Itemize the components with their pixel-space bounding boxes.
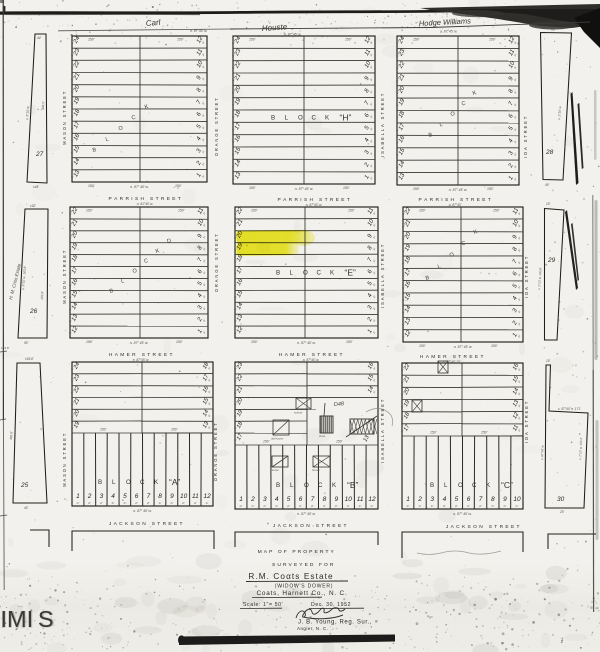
svg-text:10: 10 bbox=[180, 493, 188, 500]
svg-text:15': 15' bbox=[546, 202, 551, 206]
svg-text:(WIDOW'S DOWER): (WIDOW'S DOWER) bbox=[275, 584, 334, 590]
svg-text:150': 150' bbox=[343, 186, 350, 190]
svg-text:6: 6 bbox=[135, 493, 139, 500]
svg-text:C: C bbox=[140, 479, 145, 486]
svg-text:M A S O N S T R E E T: M A S O N S T R E E T bbox=[62, 250, 67, 304]
svg-text:29: 29 bbox=[547, 257, 556, 264]
svg-text:2: 2 bbox=[250, 496, 255, 503]
svg-text:O R A N G E S T R E E T: O R A N G E S T R E E T bbox=[214, 98, 219, 156]
svg-text:150': 150' bbox=[251, 340, 258, 344]
svg-text:150': 150' bbox=[487, 187, 494, 191]
svg-text:2r': 2r' bbox=[311, 504, 314, 508]
svg-text:40': 40' bbox=[24, 506, 29, 510]
svg-text:M A S O N S T R E E T: M A S O N S T R E E T bbox=[62, 433, 67, 487]
svg-text:L: L bbox=[290, 270, 294, 277]
svg-text:150': 150' bbox=[481, 431, 488, 435]
svg-text:Houste: Houste bbox=[262, 22, 288, 33]
svg-text:R.M. Cοαts Estate: R.M. Cοαts Estate bbox=[248, 572, 333, 581]
svg-text:2r': 2r' bbox=[194, 501, 197, 505]
svg-text:150': 150' bbox=[86, 209, 93, 213]
svg-text:J A C K S O N S T R E E T: J A C K S O N S T R E E T bbox=[109, 521, 183, 527]
svg-text:n. 87°45' w.: n. 87°45' w. bbox=[190, 29, 208, 33]
svg-text:2r': 2r' bbox=[299, 504, 302, 508]
svg-text:n. 81°45' w.: n. 81°45' w. bbox=[137, 202, 154, 206]
svg-text:301.6': 301.6' bbox=[9, 431, 13, 440]
svg-text:2r': 2r' bbox=[287, 504, 290, 508]
svg-text:s.: s. bbox=[39, 427, 43, 430]
svg-text:C: C bbox=[317, 270, 322, 277]
svg-text:28: 28 bbox=[545, 149, 554, 156]
svg-text:2r': 2r' bbox=[419, 504, 422, 508]
svg-text:2r': 2r' bbox=[335, 504, 338, 508]
svg-text:I S A B E L L A S T R E E T: I S A B E L L A S T R E E T bbox=[380, 244, 385, 308]
svg-text:n. 87° 45' w.: n. 87° 45' w. bbox=[133, 509, 151, 513]
svg-text:s. 87°45' e. 171': s. 87°45' e. 171' bbox=[558, 407, 581, 411]
svg-text:IMI S: IMI S bbox=[1, 606, 54, 632]
svg-text:B: B bbox=[271, 115, 275, 122]
svg-text:150': 150' bbox=[88, 184, 95, 188]
svg-text:“A”: “A” bbox=[169, 477, 181, 487]
svg-text:B: B bbox=[430, 482, 434, 489]
svg-text:4: 4 bbox=[275, 496, 279, 503]
svg-text:30: 30 bbox=[557, 496, 565, 503]
svg-text:11: 11 bbox=[192, 493, 199, 500]
svg-text:n. 87° 45' w.: n. 87° 45' w. bbox=[454, 345, 472, 349]
svg-text:2r': 2r' bbox=[147, 501, 150, 505]
svg-text:2r': 2r' bbox=[251, 504, 254, 508]
svg-text:I S A B E L L A S T R E E T: I S A B E L L A S T R E E T bbox=[380, 93, 385, 157]
svg-text:Cοats, Harnett Cο., N. C.: Cοats, Harnett Cο., N. C. bbox=[256, 590, 347, 597]
svg-text:e. 87°45' w.: e. 87°45' w. bbox=[133, 358, 150, 362]
svg-text:2: 2 bbox=[417, 496, 422, 503]
svg-text:1: 1 bbox=[406, 496, 410, 503]
svg-text:2r': 2r' bbox=[455, 504, 458, 508]
svg-text:9: 9 bbox=[334, 496, 338, 503]
svg-text:1: 1 bbox=[76, 493, 80, 500]
svg-text:L: L bbox=[112, 479, 116, 486]
svg-text:150': 150' bbox=[413, 38, 420, 42]
svg-text:150': 150' bbox=[345, 38, 352, 42]
svg-text:2r': 2r' bbox=[100, 501, 103, 505]
svg-text:2r': 2r' bbox=[76, 501, 79, 505]
svg-text:150': 150' bbox=[175, 184, 182, 188]
svg-text:old house: old house bbox=[271, 437, 284, 441]
svg-text:5: 5 bbox=[455, 496, 459, 503]
svg-text:6: 6 bbox=[299, 496, 303, 503]
svg-text:O: O bbox=[126, 479, 131, 486]
svg-text:J. B. Young, Reg. Sur.,: J. B. Young, Reg. Sur., bbox=[298, 620, 372, 626]
svg-text:150': 150' bbox=[249, 186, 256, 190]
svg-text:3: 3 bbox=[263, 496, 267, 503]
svg-text:2r': 2r' bbox=[491, 504, 494, 508]
svg-text:house: house bbox=[312, 468, 320, 472]
svg-text:Angier, N. C.: Angier, N. C. bbox=[297, 626, 328, 631]
svg-text:L: L bbox=[444, 482, 448, 489]
svg-text:2r': 2r' bbox=[431, 504, 434, 508]
svg-text:B: B bbox=[276, 270, 280, 277]
svg-text:I S A B E L L A S T R E E T: I S A B E L L A S T R E E T bbox=[380, 399, 385, 463]
svg-text:2r': 2r' bbox=[323, 504, 326, 508]
svg-text:15': 15' bbox=[546, 359, 551, 363]
svg-text:I D A S T R E E T: I D A S T R E E T bbox=[524, 256, 529, 298]
svg-text:school: school bbox=[294, 411, 302, 415]
svg-text:Carl: Carl bbox=[145, 18, 161, 28]
svg-text:4: 4 bbox=[443, 496, 447, 503]
svg-text:“H”: “H” bbox=[340, 113, 352, 123]
svg-text:n. 87° 45' w.: n. 87° 45' w. bbox=[449, 188, 467, 192]
svg-text:150': 150' bbox=[336, 440, 343, 444]
svg-text:J A C K S O N S T R E E T: J A C K S O N S T R E E T bbox=[273, 523, 347, 529]
svg-text:3: 3 bbox=[430, 496, 434, 503]
svg-text:150': 150' bbox=[346, 340, 353, 344]
svg-text:S U R V E Y E D F O R: S U R V E Y E D F O R bbox=[272, 562, 334, 568]
svg-text:O: O bbox=[303, 270, 308, 277]
svg-text:I D A S T R E E T: I D A S T R E E T bbox=[523, 116, 528, 158]
svg-text:2r': 2r' bbox=[240, 504, 243, 508]
svg-text:150': 150' bbox=[419, 344, 426, 348]
svg-text:store: store bbox=[319, 434, 326, 438]
svg-text:150': 150' bbox=[176, 340, 183, 344]
svg-text:a. 87°45' w.: a. 87°45' w. bbox=[306, 203, 323, 207]
svg-text:I D A S T R E E T: I D A S T R E E T bbox=[524, 401, 529, 443]
svg-text:150': 150' bbox=[348, 209, 355, 213]
svg-text:2r': 2r' bbox=[88, 501, 91, 505]
svg-text:O: O bbox=[458, 482, 463, 489]
svg-text:9: 9 bbox=[503, 496, 507, 503]
svg-text:n. 87° 45' w.: n. 87° 45' w. bbox=[295, 187, 313, 191]
svg-text:27: 27 bbox=[35, 151, 44, 158]
svg-text:L: L bbox=[290, 482, 294, 489]
svg-text:“B”: “B” bbox=[347, 480, 359, 490]
svg-text:C: C bbox=[318, 482, 323, 489]
svg-text:B: B bbox=[276, 482, 280, 489]
svg-text:2r': 2r' bbox=[516, 504, 519, 508]
svg-text:150': 150' bbox=[419, 209, 426, 213]
svg-text:n. 87° 45' w.: n. 87° 45' w. bbox=[297, 341, 315, 345]
svg-text:10: 10 bbox=[513, 496, 521, 503]
svg-text:2r': 2r' bbox=[407, 504, 410, 508]
svg-text:8: 8 bbox=[491, 496, 495, 503]
svg-text:150': 150' bbox=[430, 431, 437, 435]
svg-text:150': 150' bbox=[249, 38, 256, 42]
svg-text:C: C bbox=[472, 482, 477, 489]
svg-text:150': 150' bbox=[178, 209, 185, 213]
svg-text:150': 150' bbox=[88, 38, 95, 42]
svg-text:2r': 2r' bbox=[443, 504, 446, 508]
svg-text:B: B bbox=[98, 479, 102, 486]
svg-text:150': 150' bbox=[413, 187, 420, 191]
svg-text:163.8': 163.8' bbox=[40, 291, 44, 300]
svg-text:a. 87°45' 15'.: a. 87°45' 15'. bbox=[443, 360, 462, 364]
svg-text:6: 6 bbox=[467, 496, 471, 503]
svg-text:4: 4 bbox=[111, 493, 115, 500]
svg-text:a. 87°45' w.: a. 87°45' w. bbox=[303, 358, 320, 362]
svg-text:n. 87° 45' w.: n. 87° 45' w. bbox=[130, 185, 148, 189]
svg-text:8: 8 bbox=[323, 496, 327, 503]
svg-text:±53.8': ±53.8' bbox=[1, 346, 9, 350]
svg-text:150': 150' bbox=[263, 440, 270, 444]
svg-text:2r': 2r' bbox=[275, 504, 278, 508]
svg-text:D48: D48 bbox=[334, 401, 345, 408]
svg-text:150': 150' bbox=[177, 38, 184, 42]
svg-text:2r': 2r' bbox=[182, 501, 185, 505]
svg-text:M A S O N S T R E E T: M A S O N S T R E E T bbox=[62, 91, 67, 145]
svg-text:a. 87°45': a. 87°45' bbox=[449, 203, 462, 207]
svg-text:O R A N G E S T R E E T: O R A N G E S T R E E T bbox=[214, 234, 219, 292]
svg-text:Dec. 30, 1952: Dec. 30, 1952 bbox=[311, 602, 351, 608]
svg-text:10: 10 bbox=[345, 496, 353, 503]
svg-text:s. 87°43' w.: s. 87°43' w. bbox=[540, 444, 545, 460]
svg-text:O R A N G E S T R E E T: O R A N G E S T R E E T bbox=[213, 423, 218, 481]
svg-text:8: 8 bbox=[158, 493, 162, 500]
svg-text:40': 40' bbox=[545, 183, 550, 187]
svg-text:2r': 2r' bbox=[467, 504, 470, 508]
svg-text:150': 150' bbox=[491, 344, 498, 348]
svg-text:J A C K S O N S T R E E T: J A C K S O N S T R E E T bbox=[446, 524, 520, 530]
svg-text:2r': 2r' bbox=[359, 504, 362, 508]
svg-text:house: house bbox=[271, 468, 279, 472]
svg-text:346.5': 346.5' bbox=[41, 101, 45, 110]
svg-text:2r': 2r' bbox=[135, 501, 138, 505]
svg-text:2r': 2r' bbox=[170, 501, 173, 505]
svg-text:2r': 2r' bbox=[347, 504, 350, 508]
svg-text:1: 1 bbox=[239, 496, 243, 503]
svg-text:25': 25' bbox=[559, 510, 565, 514]
svg-text:L: L bbox=[285, 115, 289, 122]
svg-text:n. 87° 45' w.: n. 87° 45' w. bbox=[297, 512, 315, 516]
svg-text:2r': 2r' bbox=[371, 504, 374, 508]
svg-text:“C”: “C” bbox=[501, 480, 513, 490]
svg-text:2: 2 bbox=[87, 493, 92, 500]
svg-text:2r': 2r' bbox=[123, 501, 126, 505]
svg-text:65': 65' bbox=[551, 28, 556, 32]
svg-text:2r': 2r' bbox=[159, 501, 162, 505]
svg-text:150': 150' bbox=[489, 38, 496, 42]
svg-text:9: 9 bbox=[170, 493, 174, 500]
svg-text:7: 7 bbox=[311, 496, 315, 503]
svg-text:“E”: “E” bbox=[345, 268, 357, 278]
svg-text:O: O bbox=[304, 482, 309, 489]
svg-text:12: 12 bbox=[203, 493, 211, 500]
svg-text:5: 5 bbox=[123, 493, 127, 500]
svg-text:n. 87° 45' w.: n. 87° 45' w. bbox=[453, 512, 471, 516]
svg-text:7: 7 bbox=[147, 493, 151, 500]
svg-text:3: 3 bbox=[100, 493, 104, 500]
svg-text:Scale: 1"= 50': Scale: 1"= 50' bbox=[243, 602, 283, 608]
svg-text:±52': ±52' bbox=[30, 204, 36, 208]
svg-text:150': 150' bbox=[251, 209, 258, 213]
svg-text:n. 87° 45' w.: n. 87° 45' w. bbox=[130, 341, 148, 345]
svg-text:150': 150' bbox=[100, 428, 107, 432]
svg-text:12: 12 bbox=[368, 496, 376, 503]
svg-text:25: 25 bbox=[20, 482, 29, 489]
svg-text:2r': 2r' bbox=[503, 504, 506, 508]
svg-text:a. 87°45' w.: a. 87°45' w. bbox=[440, 30, 458, 34]
svg-text:2r': 2r' bbox=[263, 504, 266, 508]
svg-text:2r': 2r' bbox=[112, 501, 115, 505]
svg-text:150': 150' bbox=[86, 340, 93, 344]
svg-text:M A P O F P R O P E R T Y: M A P O F P R O P E R T Y bbox=[258, 549, 335, 555]
svg-text:C: C bbox=[312, 115, 317, 122]
svg-text:O: O bbox=[298, 115, 303, 122]
svg-text:26: 26 bbox=[29, 308, 38, 315]
svg-text:5: 5 bbox=[287, 496, 291, 503]
svg-text:150': 150' bbox=[171, 428, 178, 432]
svg-text:±45': ±45' bbox=[33, 185, 39, 189]
svg-text:44': 44' bbox=[37, 36, 42, 40]
svg-text:150': 150' bbox=[493, 209, 500, 213]
svg-text:2r': 2r' bbox=[206, 501, 209, 505]
svg-text:±53.8': ±53.8' bbox=[25, 357, 34, 361]
svg-text:55': 55' bbox=[24, 341, 29, 345]
svg-text:7: 7 bbox=[479, 496, 483, 503]
svg-text:2r': 2r' bbox=[479, 504, 482, 508]
svg-text:11: 11 bbox=[357, 496, 364, 503]
